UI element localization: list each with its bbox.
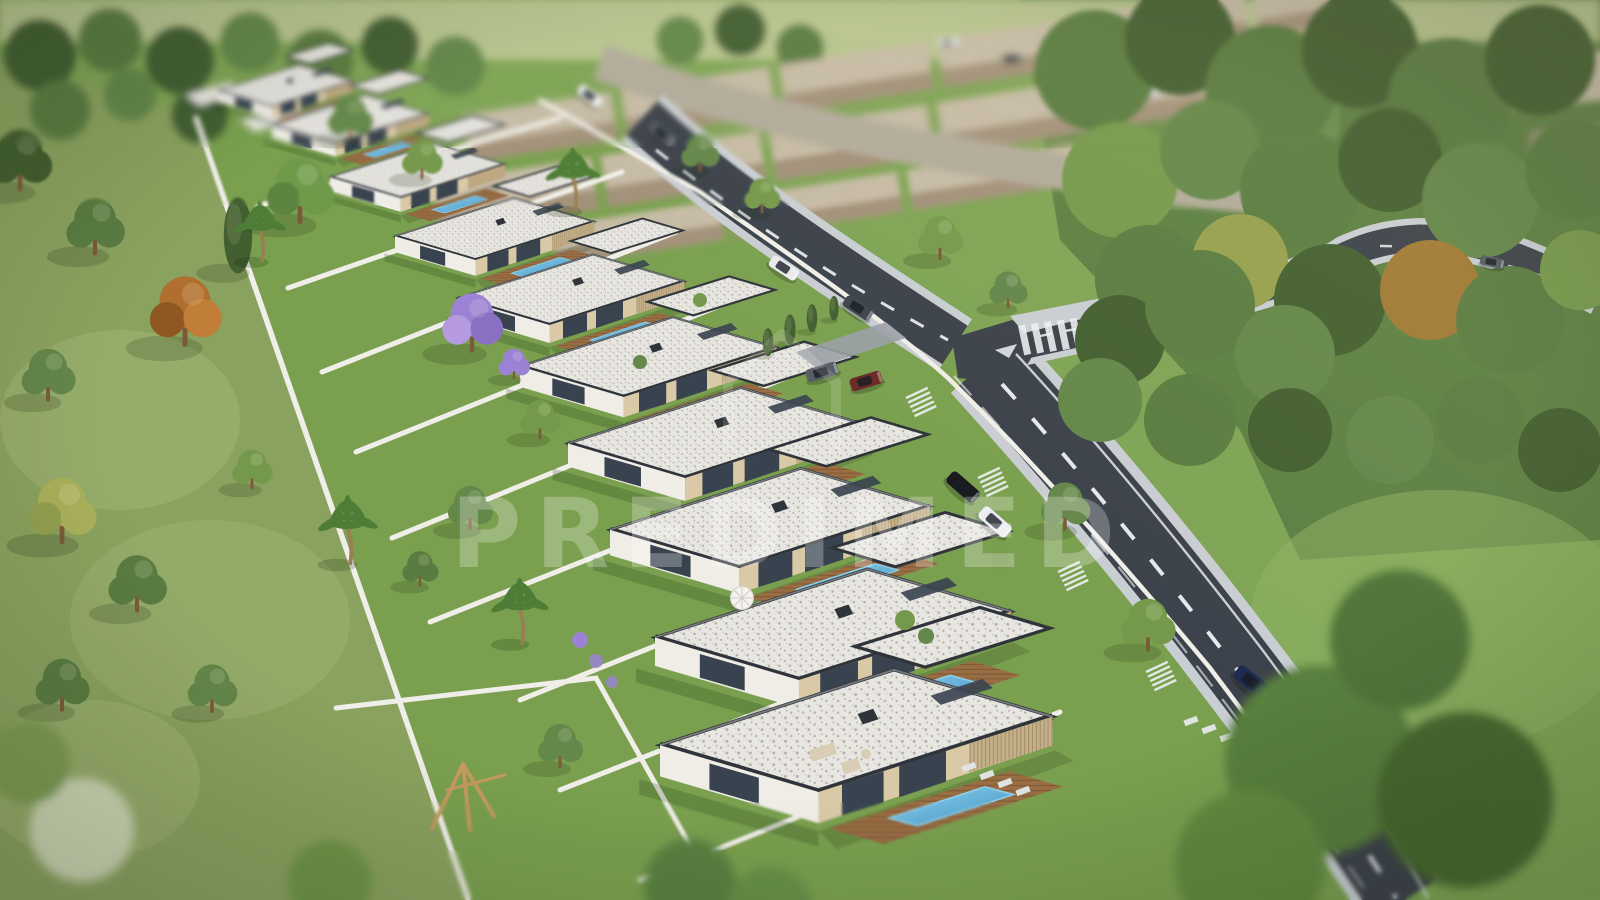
scene-canvas xyxy=(0,0,1600,900)
vignette xyxy=(0,0,1600,900)
aerial-development-render: PREDIMED xyxy=(0,0,1600,900)
